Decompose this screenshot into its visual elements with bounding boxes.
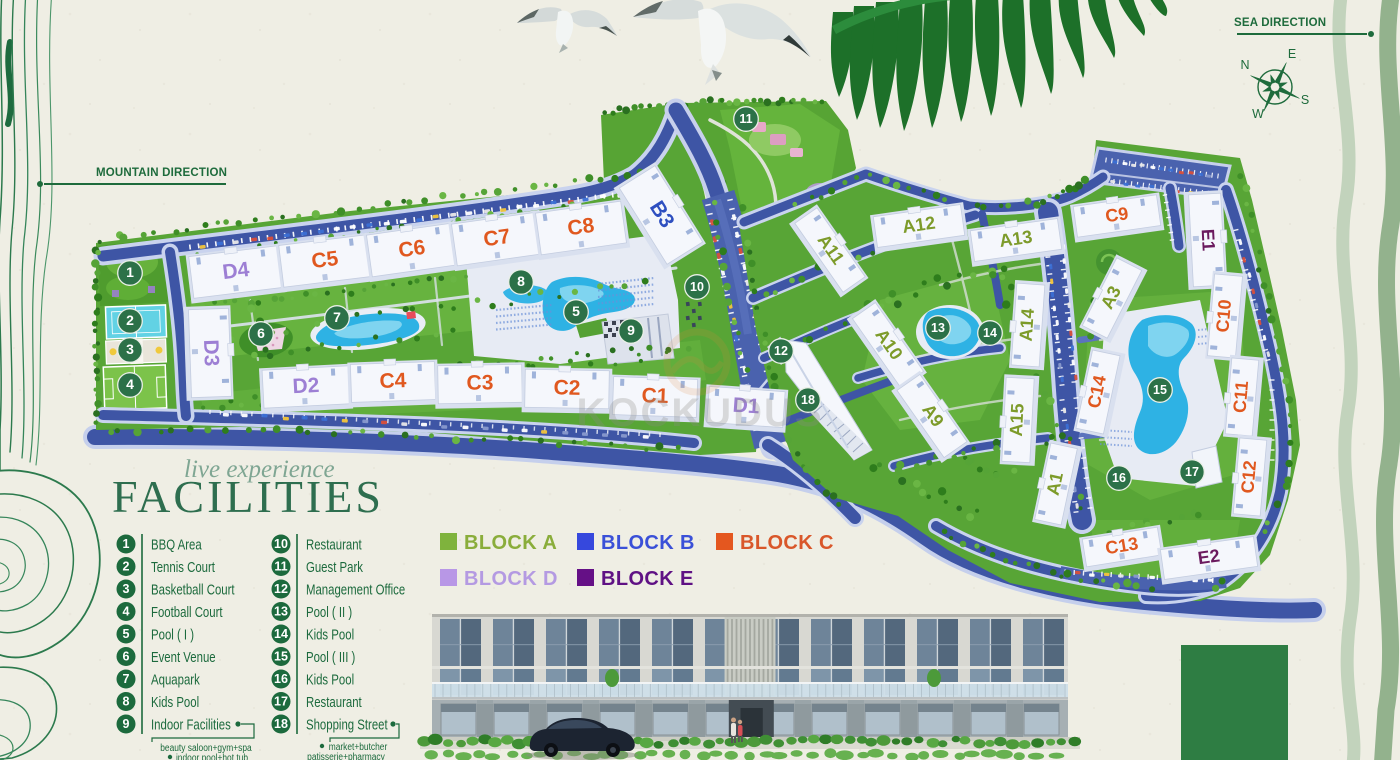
svg-text:17: 17 (274, 694, 288, 708)
svg-text:Kids Pool: Kids Pool (151, 693, 199, 710)
svg-text:12: 12 (274, 582, 288, 596)
svg-text:Kids Pool: Kids Pool (306, 671, 354, 688)
svg-text:17: 17 (1185, 465, 1199, 479)
svg-text:Restaurant: Restaurant (306, 693, 362, 710)
svg-text:A14: A14 (1016, 308, 1038, 342)
svg-text:4: 4 (126, 376, 134, 392)
svg-text:11: 11 (274, 559, 287, 573)
svg-text:5: 5 (572, 303, 580, 319)
svg-text:D4: D4 (221, 258, 251, 284)
svg-text:C5: C5 (310, 247, 340, 273)
svg-text:14: 14 (274, 627, 288, 641)
svg-text:patisserie+pharmacy: patisserie+pharmacy (307, 751, 385, 760)
svg-text:13: 13 (931, 321, 945, 335)
svg-text:C4: C4 (379, 369, 407, 393)
svg-text:16: 16 (1112, 471, 1126, 485)
svg-text:D3: D3 (199, 339, 223, 367)
svg-text:BLOCK C: BLOCK C (740, 532, 834, 554)
svg-text:5: 5 (123, 627, 130, 641)
svg-text:3: 3 (126, 341, 134, 357)
svg-text:8: 8 (123, 694, 130, 708)
svg-text:2: 2 (126, 312, 134, 328)
svg-text:C6: C6 (397, 236, 427, 263)
svg-text:1: 1 (126, 264, 134, 280)
svg-text:9: 9 (627, 322, 635, 338)
svg-text:Restaurant: Restaurant (306, 536, 362, 553)
svg-text:C3: C3 (466, 371, 493, 394)
svg-text:16: 16 (274, 672, 288, 686)
svg-text:Indoor Facilities: Indoor Facilities (151, 716, 231, 733)
svg-text:C7: C7 (482, 225, 512, 252)
svg-text:C8: C8 (566, 214, 596, 241)
svg-text:Shopping Street: Shopping Street (306, 716, 388, 733)
svg-text:6: 6 (123, 649, 130, 663)
svg-text:Kids Pool: Kids Pool (306, 626, 354, 643)
svg-text:C9: C9 (1104, 203, 1130, 226)
svg-text:E2: E2 (1197, 545, 1222, 568)
svg-text:BLOCK B: BLOCK B (601, 532, 695, 554)
svg-text:BLOCK D: BLOCK D (464, 568, 558, 590)
svg-text:E1: E1 (1198, 228, 1219, 251)
svg-text:C10: C10 (1212, 299, 1235, 334)
svg-text:Pool ( I ): Pool ( I ) (151, 626, 194, 643)
svg-text:Event Venue: Event Venue (151, 648, 216, 665)
svg-text:BBQ Area: BBQ Area (151, 536, 202, 553)
svg-text:BLOCK E: BLOCK E (601, 568, 694, 590)
svg-text:KOCKUDUS: KOCKUDUS (576, 391, 823, 435)
svg-text:8: 8 (517, 273, 525, 289)
svg-text:4: 4 (123, 604, 130, 618)
svg-text:E: E (1288, 47, 1296, 61)
svg-text:11: 11 (739, 112, 752, 126)
svg-text:C12: C12 (1237, 460, 1260, 495)
svg-text:6: 6 (257, 325, 265, 341)
svg-text:7: 7 (123, 672, 130, 686)
svg-text:A15: A15 (1006, 403, 1028, 437)
svg-text:D2: D2 (292, 374, 320, 398)
svg-text:Management Office: Management Office (306, 581, 405, 598)
svg-text:14: 14 (983, 326, 997, 340)
svg-text:Guest Park: Guest Park (306, 558, 363, 575)
svg-text:10: 10 (274, 537, 288, 551)
svg-text:15: 15 (1153, 383, 1167, 397)
svg-text:SEA DIRECTION: SEA DIRECTION (1234, 17, 1326, 29)
svg-text:3: 3 (123, 582, 130, 596)
svg-text:9: 9 (123, 717, 130, 731)
svg-text:2: 2 (123, 559, 130, 573)
svg-text:Football Court: Football Court (151, 603, 223, 620)
svg-text:1: 1 (123, 537, 130, 551)
svg-text:C11: C11 (1229, 380, 1252, 414)
svg-text:7: 7 (333, 309, 341, 325)
svg-text:12: 12 (774, 344, 788, 358)
svg-text:BLOCK A: BLOCK A (464, 532, 557, 554)
svg-text:MOUNTAIN DIRECTION: MOUNTAIN DIRECTION (96, 167, 227, 179)
svg-text:indoor pool+hot tub: indoor pool+hot tub (176, 752, 248, 760)
svg-text:13: 13 (274, 604, 288, 618)
svg-text:Aquapark: Aquapark (151, 671, 200, 688)
svg-text:W: W (1252, 107, 1264, 121)
svg-text:10: 10 (690, 280, 704, 294)
svg-text:18: 18 (801, 393, 815, 407)
svg-text:FACILITIES: FACILITIES (112, 471, 384, 522)
svg-text:N: N (1240, 58, 1249, 72)
svg-text:15: 15 (274, 649, 288, 663)
svg-text:Pool ( III ): Pool ( III ) (306, 648, 355, 665)
svg-text:Tennis Court: Tennis Court (151, 558, 215, 575)
svg-text:S: S (1301, 93, 1309, 107)
svg-text:Pool ( II ): Pool ( II ) (306, 603, 352, 620)
svg-text:Basketball Court: Basketball Court (151, 581, 235, 598)
svg-text:18: 18 (274, 717, 288, 731)
